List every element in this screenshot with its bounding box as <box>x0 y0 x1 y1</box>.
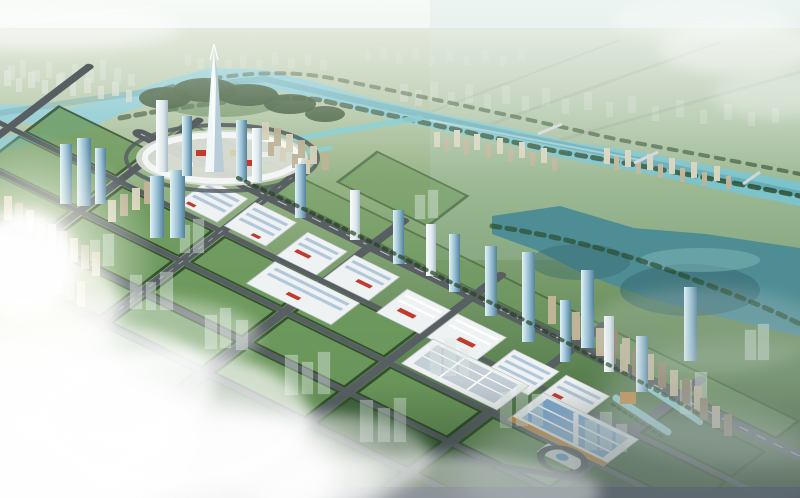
cloud-wisp <box>610 2 790 38</box>
lake-dark-patch-2 <box>530 244 630 280</box>
aerial-scene <box>0 0 800 498</box>
city-masterplan-rendering <box>0 0 800 498</box>
